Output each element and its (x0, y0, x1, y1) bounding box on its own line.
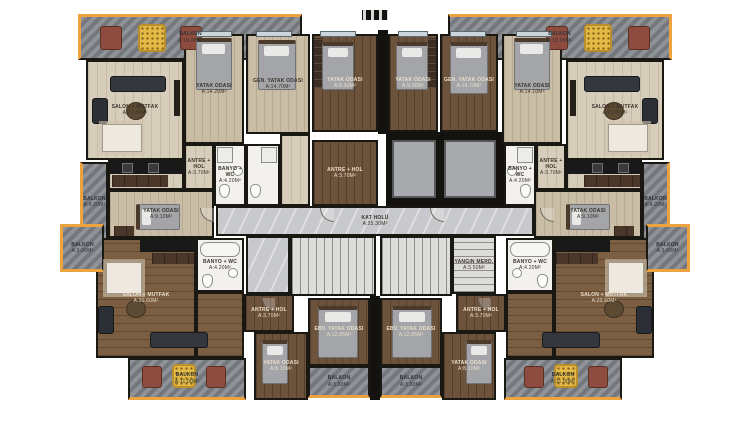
chair-red-icon (100, 26, 122, 50)
round-table-icon (126, 102, 146, 120)
shaft-wall-top-room (378, 30, 388, 134)
bed-h-icon (136, 204, 180, 230)
tv-icon (570, 80, 576, 116)
elevator-icon (444, 140, 496, 198)
armchair-icon (98, 306, 114, 334)
table-yellow-icon (138, 24, 166, 52)
balkon-ebv-left-room: BALKONA:3.80m² (308, 366, 370, 398)
balkon-bottom-right-corner-area: A:3.00m² (657, 248, 679, 254)
wall-bottom-center-room (370, 296, 380, 400)
tv-icon (174, 80, 180, 116)
sink-icon (512, 268, 522, 278)
balkon-bottom-right-corner-label: BALKONA:3.00m² (648, 227, 687, 269)
antre-top-right-room: ANTRE + HOLA:3.70m² (536, 144, 566, 190)
kat-holu-label: KAT HOLÜA:25.30m² (218, 208, 532, 234)
balkon-side-right-area: A:4.20m² (645, 202, 667, 208)
antre-center-left-area: A:3.70m² (334, 173, 356, 179)
table-yellow-icon (172, 364, 196, 388)
antre-top-left-area: A:3.70m² (188, 170, 210, 176)
armchair-icon (636, 306, 652, 334)
tub-icon (200, 242, 240, 257)
bed-icon (450, 42, 488, 94)
balkon-ebv-left-area: A:3.80m² (328, 382, 350, 388)
antre-top-left-room: ANTRE + HOLA:3.70m² (184, 144, 214, 190)
balkon-bottom-right-corner-name: BALKON (656, 242, 679, 248)
counter-icon (556, 240, 610, 252)
round-table-icon (604, 102, 624, 120)
chair-red-icon (628, 26, 650, 50)
bed-h-icon (566, 204, 610, 230)
window-icon (516, 31, 552, 37)
chair-red-icon (142, 366, 162, 388)
hol-top-left-room (280, 134, 310, 206)
bed-icon (318, 306, 358, 358)
balkon-ebv-right-name: BALKON (400, 375, 423, 381)
dining-icon (102, 124, 142, 152)
round-table-icon (604, 300, 624, 318)
wardrobe-icon (314, 38, 322, 88)
balkon-side-left-area: A:4.20m² (84, 202, 106, 208)
antre-center-left-label: ANTRE + HOLA:3.70m² (314, 142, 376, 204)
antre-top-right-name: ANTRE + HOL (538, 158, 564, 171)
balkon-ebv-left-label: BALKONA:3.80m² (310, 368, 368, 395)
counter-icon (110, 162, 182, 174)
stairwell-left-room (290, 236, 376, 296)
counter-icon (140, 240, 194, 252)
elevator-icon (392, 140, 436, 198)
antre-top-left-name: ANTRE + HOL (186, 158, 212, 171)
sofa-icon (110, 76, 166, 92)
antre-center-left-name: ANTRE + HOL (327, 167, 363, 173)
antre-center-left-room: ANTRE + HOLA:3.70m² (312, 140, 378, 206)
armchair-icon (92, 98, 108, 124)
chair-red-icon (206, 366, 226, 388)
counter-icon (568, 162, 640, 174)
cabinet-icon (114, 226, 134, 236)
chair-red-icon (588, 366, 608, 388)
balkon-ebv-right-room: BALKONA:3.80m² (380, 366, 442, 398)
appl-icon (122, 163, 133, 173)
yangin-merdiveni-room: YANGIN MERD.A:3.50m² (452, 236, 496, 294)
window-icon (196, 31, 232, 37)
bed-icon (262, 340, 288, 384)
balkon-ebv-right-area: A:3.80m² (400, 382, 422, 388)
floor-plan: BALKONA:10.00m²BALKONA:10.00m²SALON + MU… (0, 0, 750, 422)
bed-icon (196, 38, 232, 90)
antre-top-right-area: A:3.70m² (540, 170, 562, 176)
balkon-side-left-name: BALKON (83, 196, 106, 202)
antre-bottom-right-area: A:3.70m² (470, 313, 492, 319)
armchair-icon (642, 98, 658, 124)
cabinet-icon (614, 226, 634, 236)
kat-holu-name: KAT HOLÜ (361, 215, 388, 221)
appl-icon (618, 163, 629, 173)
balkon-ebv-right-label: BALKONA:3.80m² (382, 368, 440, 395)
yangin-merdiveni-label: YANGIN MERD.A:3.50m² (454, 238, 494, 292)
appl-icon (592, 163, 603, 173)
banyo-bottom-right-area: A:4.20m² (519, 265, 541, 271)
sink-icon (233, 166, 243, 176)
antre-bottom-left-area: A:3.70m² (258, 313, 280, 319)
kat-holu-area: A:25.30m² (363, 221, 388, 227)
sink-icon (507, 166, 517, 176)
balkon-bottom-left-corner-area: A:3.00m² (72, 248, 94, 254)
window-icon (256, 31, 292, 37)
cabinet-icon (152, 253, 194, 264)
kat-holu-room: KAT HOLÜA:25.30m² (216, 206, 534, 236)
yangin-merdiveni-area: A:3.50m² (463, 265, 485, 271)
cabinet-icon (556, 253, 598, 264)
table-yellow-icon (554, 364, 578, 388)
balkon-bottom-left-corner-room: BALKONA:3.00m² (60, 224, 104, 272)
bed-icon (392, 306, 432, 358)
balkon-bottom-left-corner-label: BALKONA:3.00m² (63, 227, 102, 269)
sofa-icon (542, 332, 600, 348)
bed-icon (514, 38, 550, 90)
salon-bottom-left-ext-room (196, 292, 244, 358)
banyo-bottom-left-name: BANYO + WC (203, 259, 237, 265)
bed-icon (258, 40, 296, 90)
window-icon (320, 31, 356, 37)
dining-icon (608, 262, 644, 294)
appl-icon (148, 163, 159, 173)
antre-bottom-right-name: ANTRE + HOL (463, 307, 499, 313)
banyo-bottom-right-name: BANYO + WC (513, 259, 547, 265)
dining-icon (608, 124, 648, 152)
sofa-icon (150, 332, 208, 348)
balkon-bottom-left-corner-name: BALKON (71, 242, 94, 248)
balkon-ebv-left-name: BALKON (328, 375, 351, 381)
chair-red-icon (524, 366, 544, 388)
balkon-bottom-right-corner-room: BALKONA:3.00m² (646, 224, 690, 272)
core-marble-left-room (246, 236, 290, 294)
bed-icon (322, 42, 354, 90)
antre-top-left-label: ANTRE + HOLA:3.70m² (186, 146, 212, 188)
dining-icon (106, 262, 142, 294)
tub-icon (510, 242, 550, 257)
stairwell-right-room (380, 236, 452, 296)
shower-icon (261, 147, 277, 163)
shower-icon (517, 147, 533, 163)
sofa-icon (584, 76, 640, 92)
balkon-side-right-name: BALKON (644, 196, 667, 202)
antre-top-right-label: ANTRE + HOLA:3.70m² (538, 146, 564, 188)
wardrobe-icon (428, 38, 436, 88)
window-icon (450, 31, 486, 37)
round-table-icon (126, 300, 146, 318)
bed-icon (466, 340, 492, 384)
window-icon (398, 31, 428, 37)
sink-icon (228, 268, 238, 278)
cabinet-icon (584, 175, 640, 187)
yangin-merdiveni-name: YANGIN MERD. (455, 259, 494, 265)
salon-bottom-right-ext-room (506, 292, 554, 358)
shaft-icon (358, 6, 392, 24)
cabinet-icon (112, 175, 168, 187)
shower-icon (217, 147, 233, 163)
table-yellow-icon (584, 24, 612, 52)
bed-icon (396, 42, 428, 90)
